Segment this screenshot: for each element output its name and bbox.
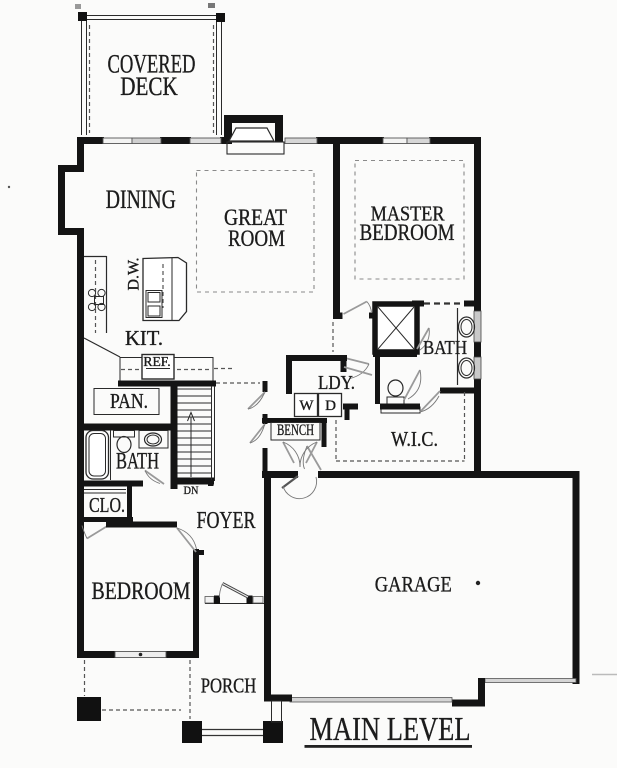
svg-text:BATH: BATH (116, 449, 159, 474)
svg-text:KIT.: KIT. (125, 326, 163, 350)
svg-text:BATH: BATH (423, 337, 467, 359)
svg-text:MAIN LEVEL: MAIN LEVEL (310, 711, 471, 748)
svg-text:BEDROOM: BEDROOM (92, 577, 191, 605)
svg-text:DINING: DINING (106, 184, 176, 214)
svg-text:D: D (325, 398, 336, 414)
svg-text:CLO.: CLO. (89, 493, 125, 517)
svg-text:DECK: DECK (120, 72, 178, 101)
svg-text:BEDROOM: BEDROOM (360, 220, 455, 245)
svg-text:PORCH: PORCH (201, 676, 257, 698)
svg-text:D.W.: D.W. (126, 258, 143, 291)
svg-text:W: W (299, 398, 314, 414)
svg-text:GARAGE: GARAGE (375, 572, 452, 597)
svg-text:ROOM: ROOM (228, 226, 285, 251)
svg-text:DN: DN (184, 483, 199, 497)
svg-text:BENCH: BENCH (277, 422, 314, 439)
svg-text:LDY.: LDY. (318, 372, 355, 394)
svg-text:REF.: REF. (143, 354, 170, 369)
svg-text:W.I.C.: W.I.C. (391, 427, 438, 451)
svg-text:FOYER: FOYER (197, 508, 256, 534)
svg-text:PAN.: PAN. (110, 389, 148, 413)
